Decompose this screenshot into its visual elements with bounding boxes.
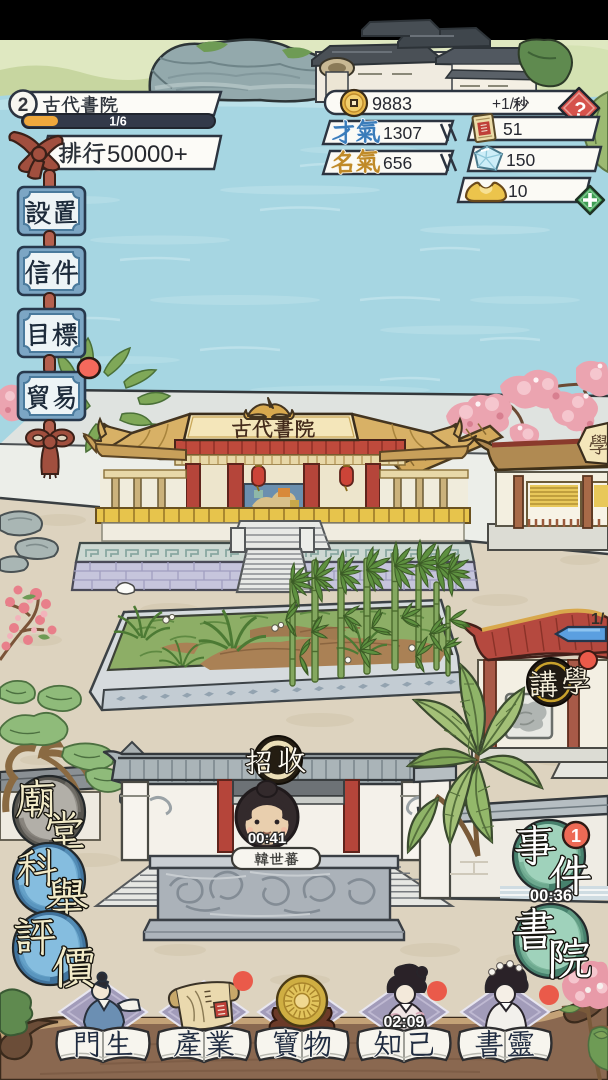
svg-text:1/6: 1/6	[109, 115, 126, 129]
svg-text:150: 150	[506, 150, 535, 170]
svg-text:00:41: 00:41	[248, 830, 286, 847]
svg-text:10: 10	[508, 181, 528, 201]
svg-text:00:36: 00:36	[530, 887, 572, 905]
svg-text:51: 51	[503, 119, 522, 139]
svg-text:1: 1	[571, 826, 581, 846]
svg-text:2: 2	[18, 95, 29, 116]
svg-text:50000+: 50000+	[107, 141, 188, 168]
svg-text:02:09: 02:09	[384, 1014, 425, 1031]
svg-text:656: 656	[383, 153, 412, 173]
svg-text:+1/: +1/	[492, 96, 515, 113]
svg-text:9883: 9883	[372, 94, 412, 114]
svg-text:1307: 1307	[383, 123, 422, 143]
svg-text:1/: 1/	[591, 611, 605, 628]
